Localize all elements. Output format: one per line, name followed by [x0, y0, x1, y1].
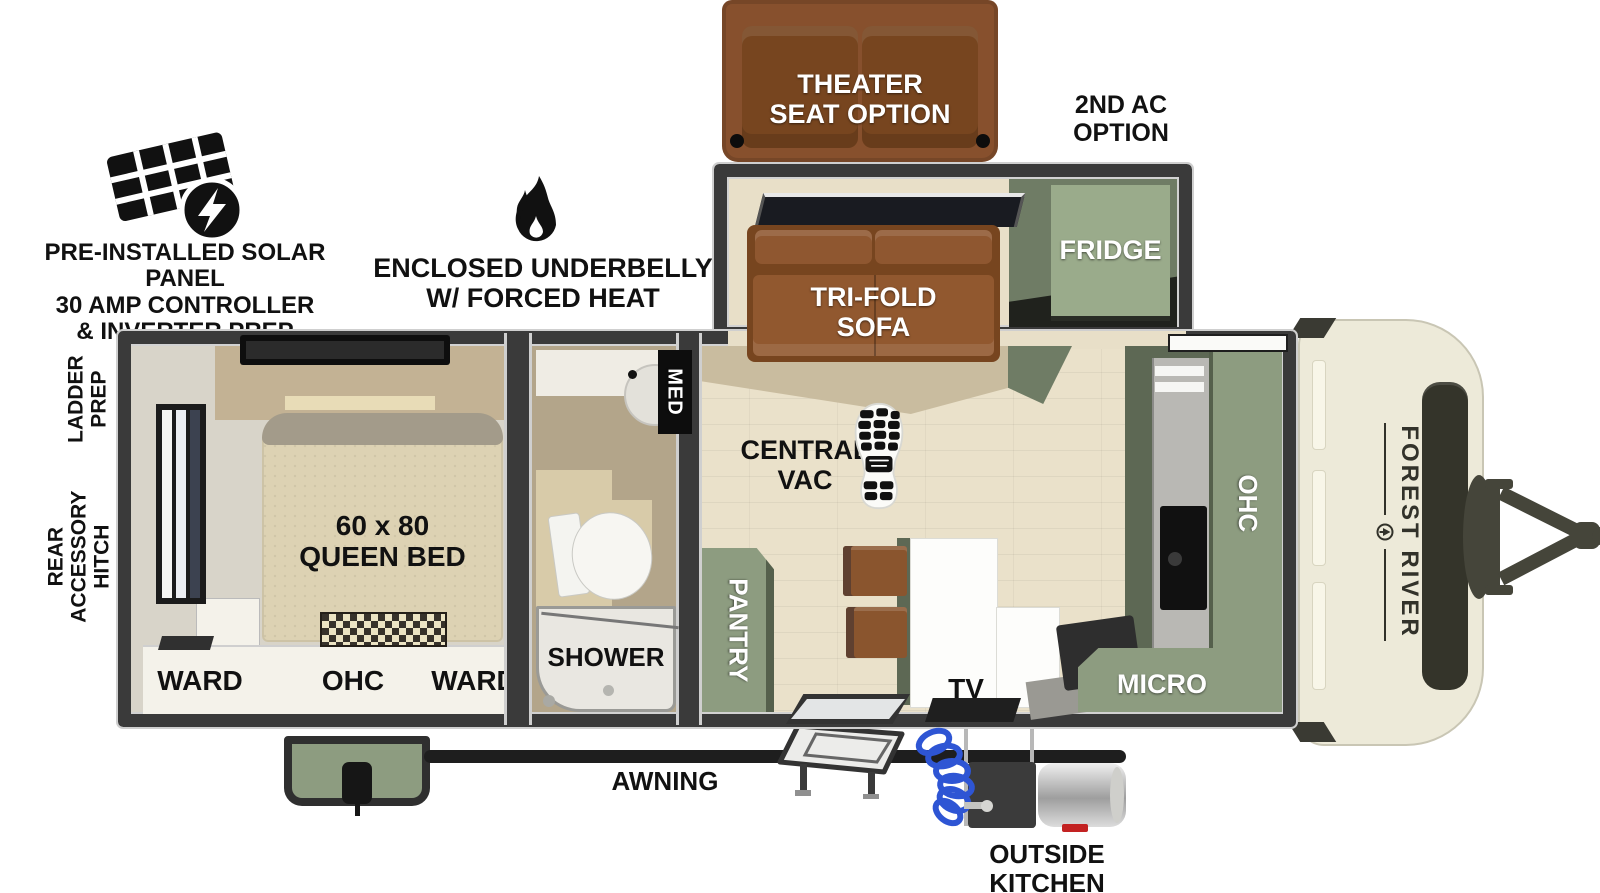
kitchen-ohc-cabinet: OHC	[1209, 352, 1282, 655]
fridge: FRIDGE	[1051, 185, 1170, 321]
microwave-cabinet: MICRO	[1078, 648, 1282, 712]
pantry-label: PANTRY	[724, 578, 753, 682]
rear-hitch-label: REAR ACCESSORY HITCH	[45, 491, 114, 623]
dinette-chair-1	[843, 546, 907, 596]
bedroom-counter-item	[158, 636, 214, 650]
floorplan-diagram: THEATER SEAT OPTION 2ND AC OPTION PRE-IN…	[0, 0, 1600, 893]
bed-pillow	[262, 413, 503, 445]
awning-label: AWNING	[585, 767, 745, 796]
slideout-window	[755, 193, 1025, 227]
theater-seat-sofa: THEATER SEAT OPTION	[722, 0, 998, 162]
bath-faucet	[628, 370, 637, 379]
fridge-label: FRIDGE	[1059, 236, 1161, 266]
tri-fold-sofa: TRI-FOLD SOFA	[747, 225, 1000, 362]
cooktop	[1160, 506, 1207, 610]
sofa-foot-left	[730, 134, 744, 148]
queen-bed: 60 x 80 QUEEN BED	[262, 413, 503, 642]
wardrobe-row: WARD OHC WARD	[143, 645, 506, 714]
bedroom-window	[156, 404, 206, 604]
bedroom-bath-wall	[504, 333, 532, 725]
med-cabinet: MED	[658, 350, 692, 434]
tri-fold-sofa-label: TRI-FOLD SOFA	[747, 283, 1000, 342]
med-label: MED	[664, 368, 686, 415]
queen-bed-label: 60 x 80 QUEEN BED	[262, 511, 503, 573]
cap-seam-1	[1312, 360, 1326, 450]
kitchen-sink-2	[1155, 382, 1204, 392]
tv-panel	[925, 698, 1021, 722]
entry-steps	[770, 720, 920, 800]
kitchen-sink	[1155, 366, 1204, 376]
storage-compartment	[284, 736, 430, 806]
shower-head	[543, 695, 555, 707]
griddle-knob	[1062, 824, 1088, 832]
outside-kitchen-label: OUTSIDE KITCHEN	[947, 840, 1147, 893]
water-hose	[908, 726, 1012, 830]
forest-river-badge	[1376, 382, 1394, 682]
tree-badge-icon	[1376, 523, 1394, 541]
second-ac-label: 2ND AC OPTION	[1036, 92, 1206, 147]
bedroom-skylight	[285, 396, 435, 410]
griddle-tank	[1038, 763, 1126, 827]
flame-icon	[505, 176, 567, 250]
cap-seam-2	[1312, 470, 1326, 566]
dinette-chair-2	[846, 607, 907, 658]
cooktop-knob	[1168, 552, 1182, 566]
shower-drain	[603, 685, 614, 696]
bootprint-icon	[852, 402, 906, 510]
forest-river-logo: FOREST RIVER	[1376, 382, 1424, 682]
kitchen-ohc-label: OHC	[1233, 475, 1262, 533]
bed-ohc-label: OHC	[303, 666, 403, 697]
solar-prep-label: PRE-INSTALLED SOLAR PANEL 30 AMP CONTROL…	[25, 240, 345, 346]
headboard	[320, 612, 447, 647]
tongue-hitch	[1455, 455, 1600, 625]
sofa-foot-right	[976, 134, 990, 148]
cap-seam-3	[1312, 582, 1326, 690]
shower-door	[541, 612, 679, 629]
kitchen-window	[1168, 334, 1288, 352]
underbelly-label: ENCLOSED UNDERBELLY W/ FORCED HEAT	[363, 254, 723, 313]
solar-panel-icon	[100, 126, 260, 246]
pantry-cabinet: PANTRY	[702, 548, 774, 712]
entry-door	[786, 694, 910, 724]
kitchen-cabinet-side	[1125, 358, 1155, 652]
theater-seat-label: THEATER SEAT OPTION	[722, 70, 998, 129]
forest-river-wordmark: FOREST RIVER	[1394, 382, 1424, 682]
bedroom-roof-vent	[240, 335, 450, 365]
ward-left-label: WARD	[150, 666, 250, 697]
shower-stall: SHOWER	[536, 606, 676, 712]
compartment-latch	[342, 762, 372, 804]
ladder-prep-label: LADDER PREP	[64, 356, 110, 444]
compartment-latch-stem	[355, 802, 360, 816]
micro-label: MICRO	[1092, 670, 1232, 700]
shower-label: SHOWER	[539, 643, 673, 672]
